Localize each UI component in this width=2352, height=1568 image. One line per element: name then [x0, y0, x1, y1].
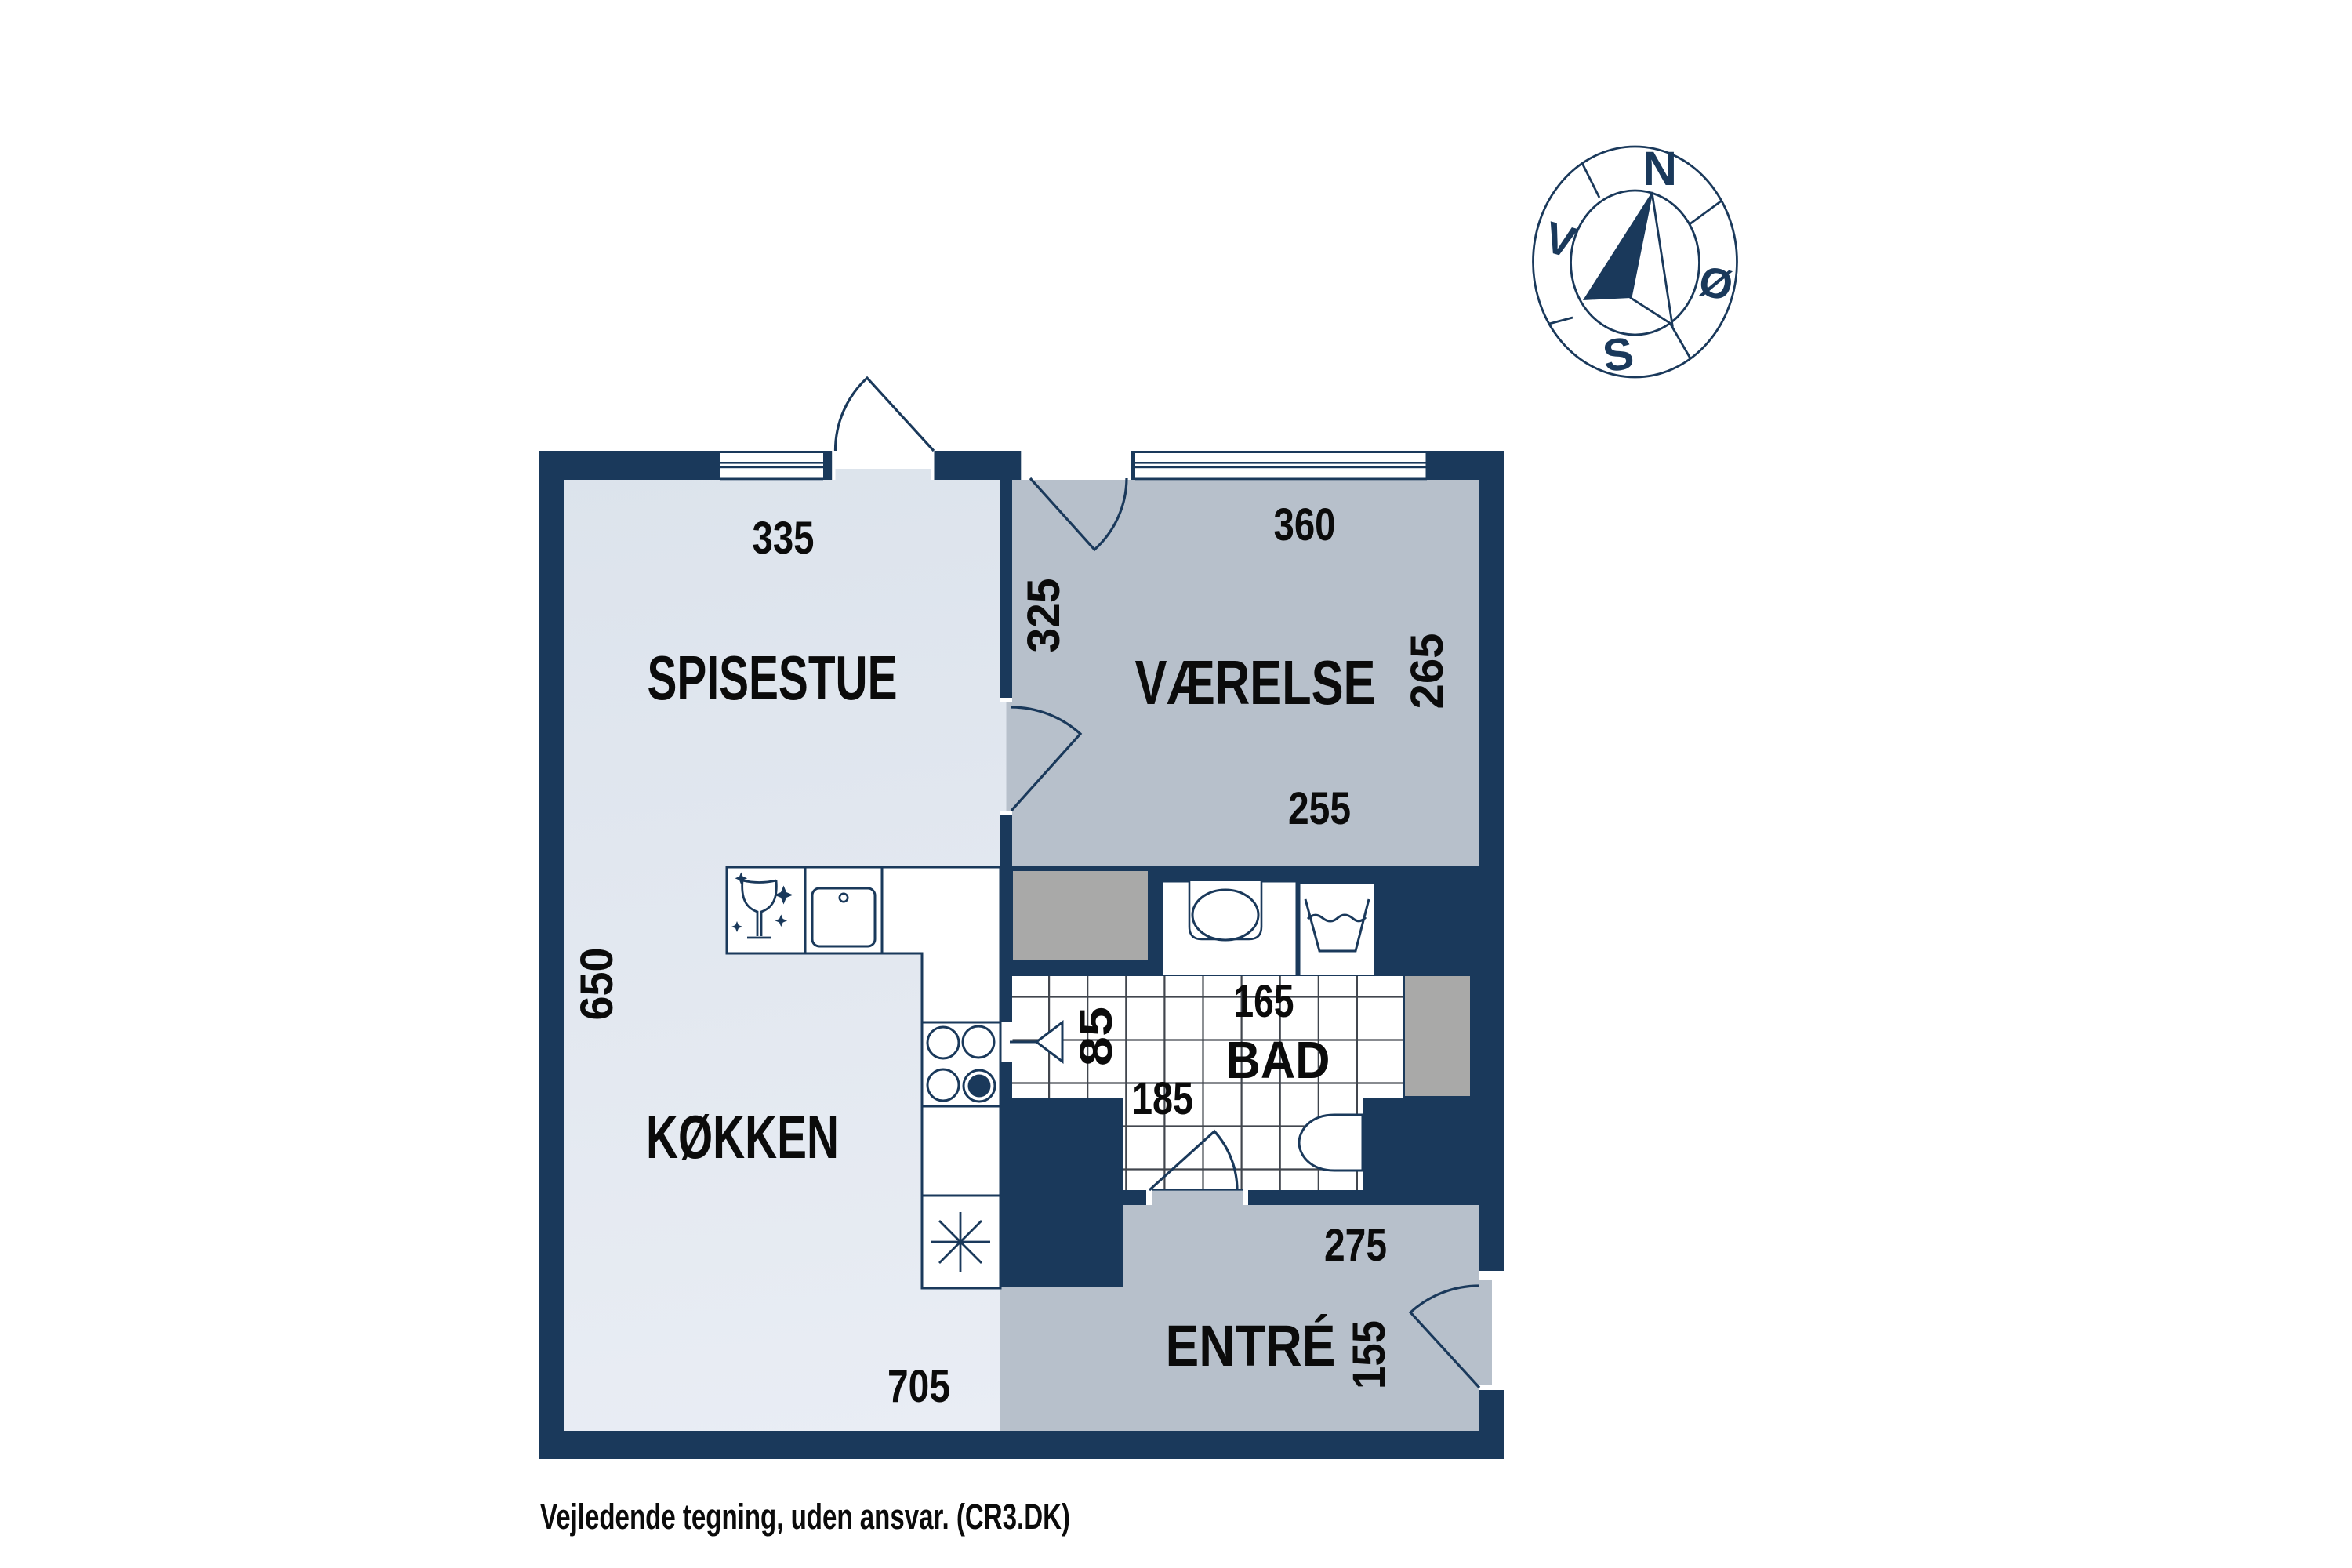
svg-text:BAD: BAD	[1226, 1031, 1330, 1090]
svg-text:705: 705	[887, 1361, 950, 1412]
svg-text:Vejledende tegning, uden ansva: Vejledende tegning, uden ansvar. (CR3.DK…	[540, 1497, 1070, 1537]
svg-text:165: 165	[1234, 976, 1294, 1027]
svg-text:KØKKEN: KØKKEN	[646, 1102, 839, 1171]
svg-text:360: 360	[1274, 499, 1336, 550]
svg-text:N: N	[1642, 142, 1677, 195]
svg-text:265: 265	[1402, 633, 1453, 710]
svg-text:185: 185	[1132, 1073, 1193, 1124]
svg-text:VÆRELSE: VÆRELSE	[1135, 648, 1376, 717]
svg-text:85: 85	[1071, 1007, 1122, 1066]
svg-text:650: 650	[572, 948, 622, 1021]
svg-text:335: 335	[753, 513, 815, 564]
svg-text:155: 155	[1344, 1320, 1395, 1389]
svg-text:255: 255	[1288, 783, 1351, 834]
svg-text:325: 325	[1018, 579, 1069, 653]
svg-text:275: 275	[1324, 1220, 1387, 1271]
svg-text:ENTRÉ: ENTRÉ	[1166, 1313, 1336, 1378]
svg-text:SPISESTUE: SPISESTUE	[648, 643, 898, 713]
